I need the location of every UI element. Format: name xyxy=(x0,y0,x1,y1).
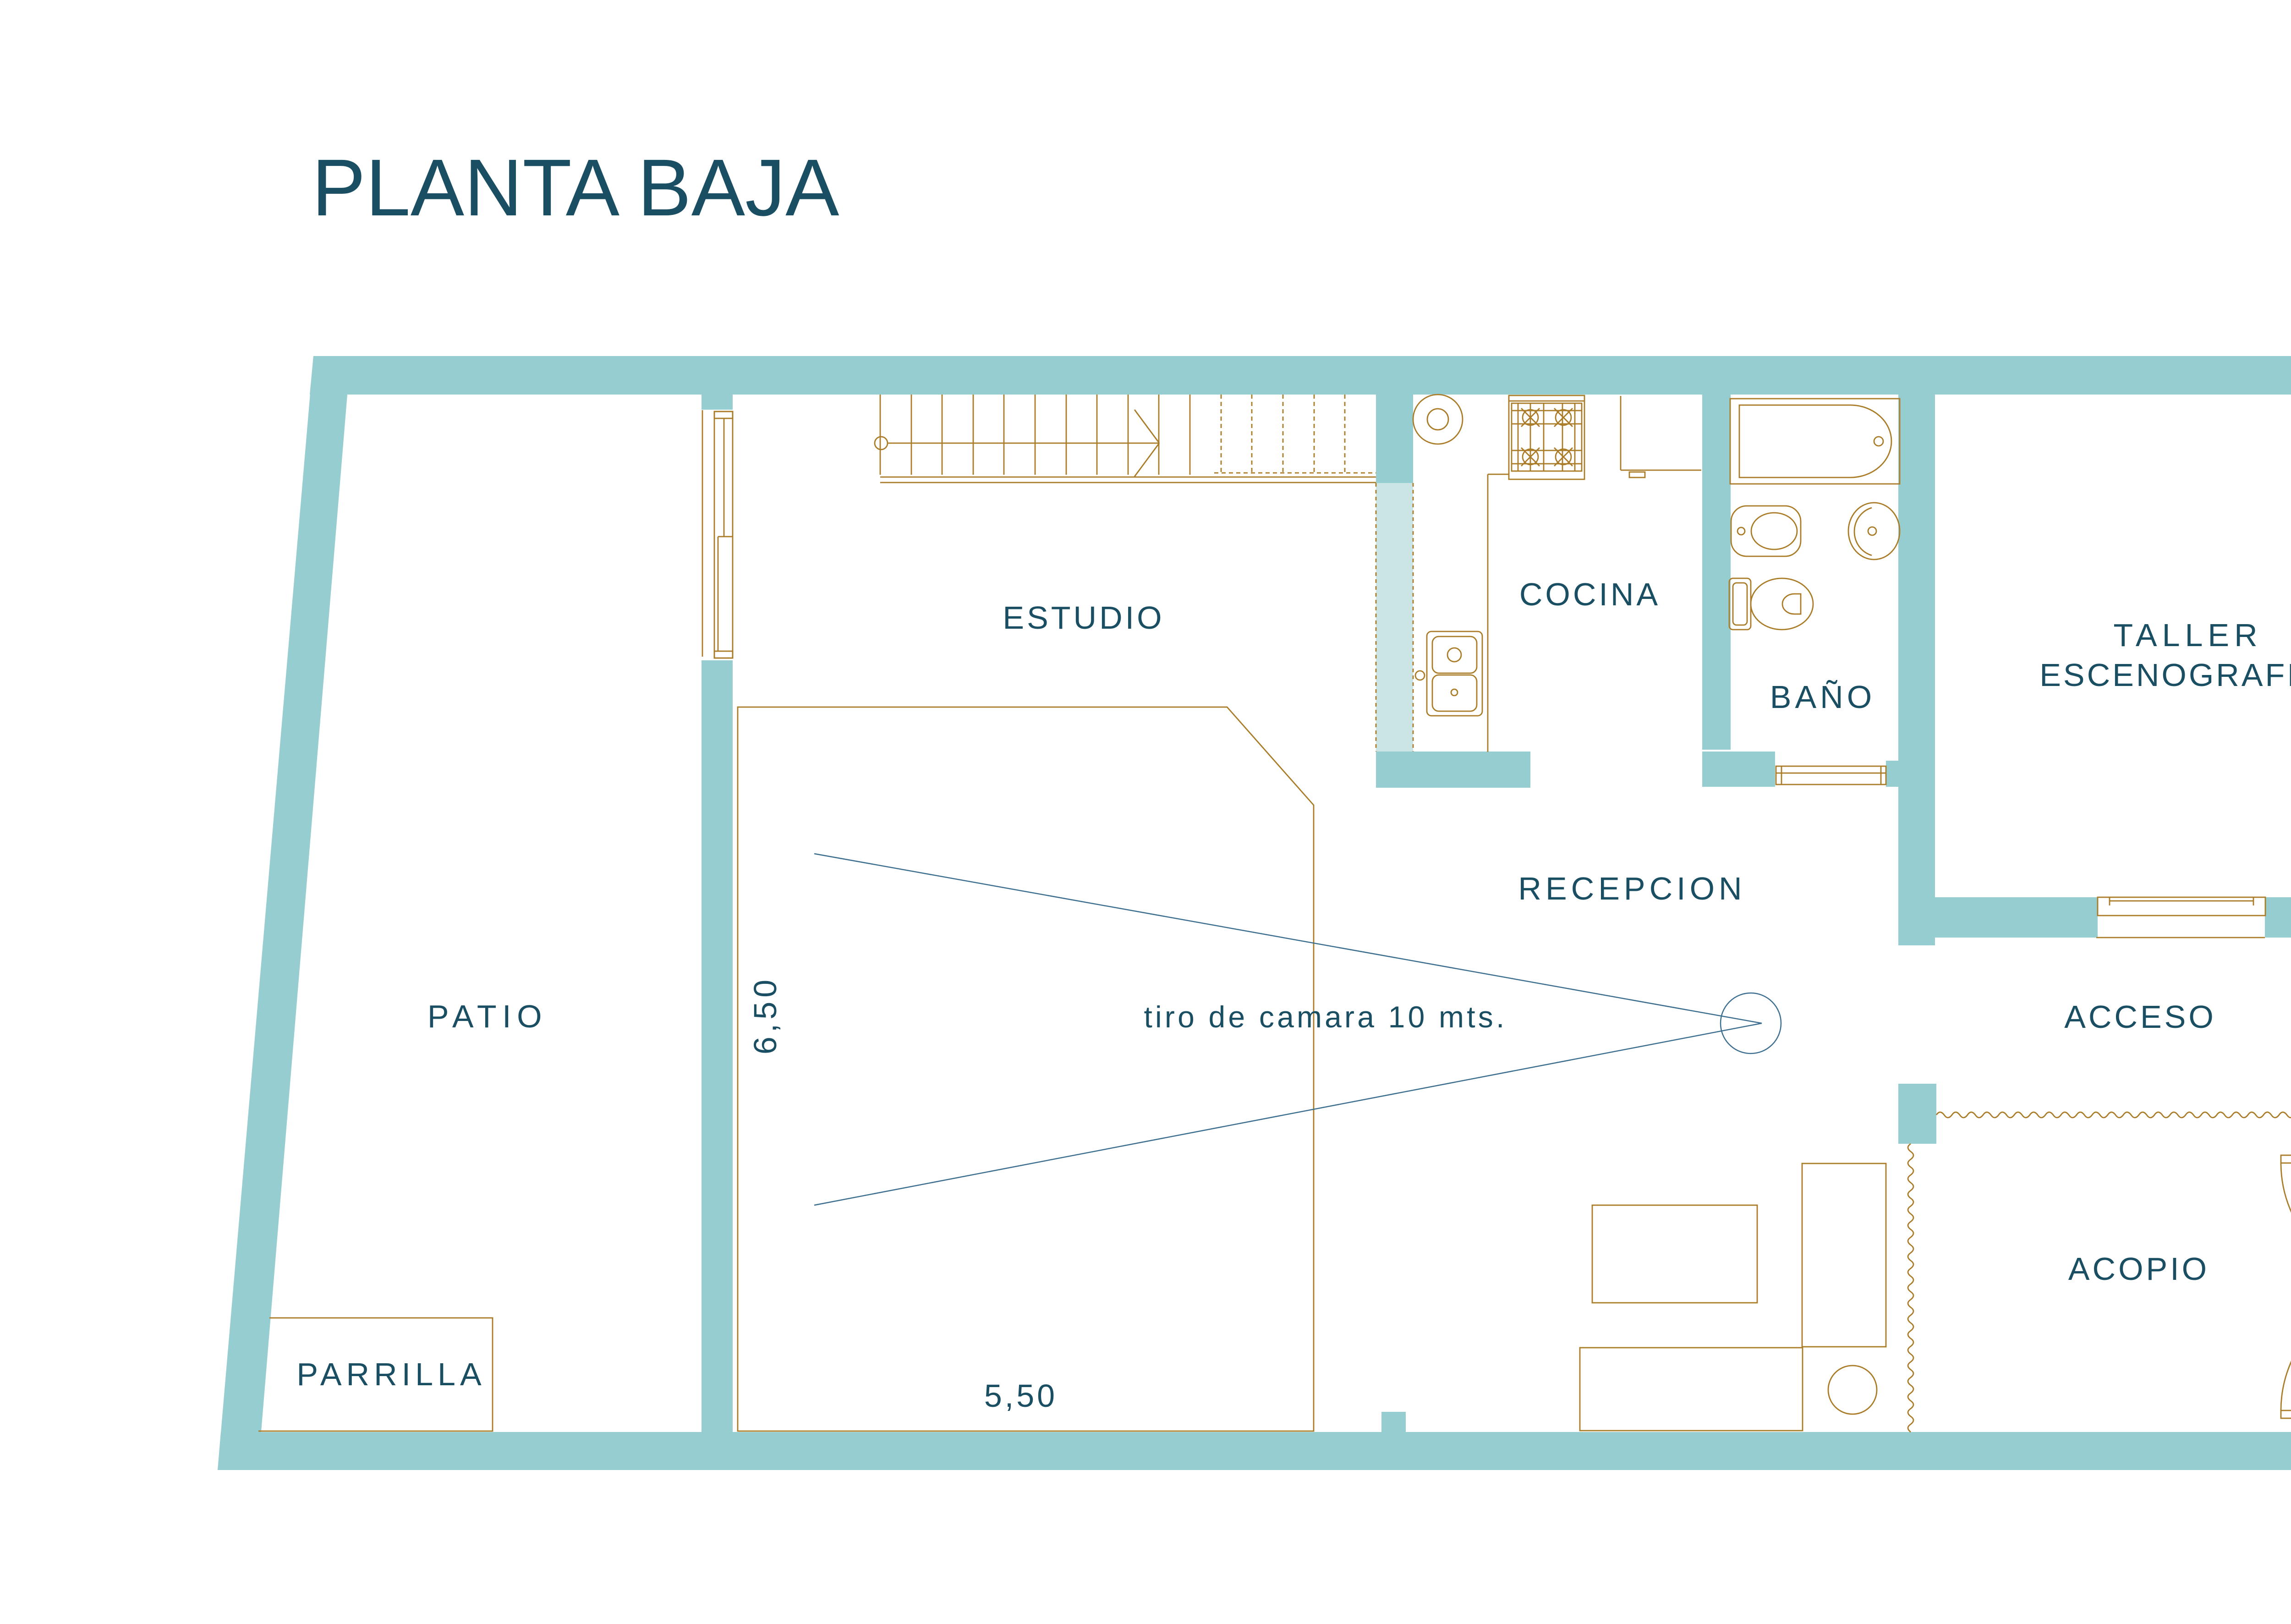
svg-text:PLANTA BAJA: PLANTA BAJA xyxy=(312,143,840,233)
svg-text:PARRILLA: PARRILLA xyxy=(296,1356,486,1392)
svg-text:5,50: 5,50 xyxy=(984,1378,1058,1414)
svg-text:RECEPCION: RECEPCION xyxy=(1518,871,1746,906)
svg-text:6,50: 6,50 xyxy=(747,976,783,1054)
svg-text:ESTUDIO: ESTUDIO xyxy=(1003,600,1164,636)
svg-text:ACOPIO: ACOPIO xyxy=(2068,1251,2209,1287)
svg-text:tiro de camara 10 mts.: tiro de camara 10 mts. xyxy=(1144,1000,1507,1034)
svg-text:COCINA: COCINA xyxy=(1519,576,1661,612)
svg-text:BAÑO: BAÑO xyxy=(1770,679,1875,715)
svg-text:ESCENOGRAFICO: ESCENOGRAFICO xyxy=(2039,657,2291,693)
svg-text:TALLER: TALLER xyxy=(2113,617,2262,653)
svg-text:ACCESO: ACCESO xyxy=(2064,999,2216,1035)
svg-text:PATIO: PATIO xyxy=(428,999,548,1034)
